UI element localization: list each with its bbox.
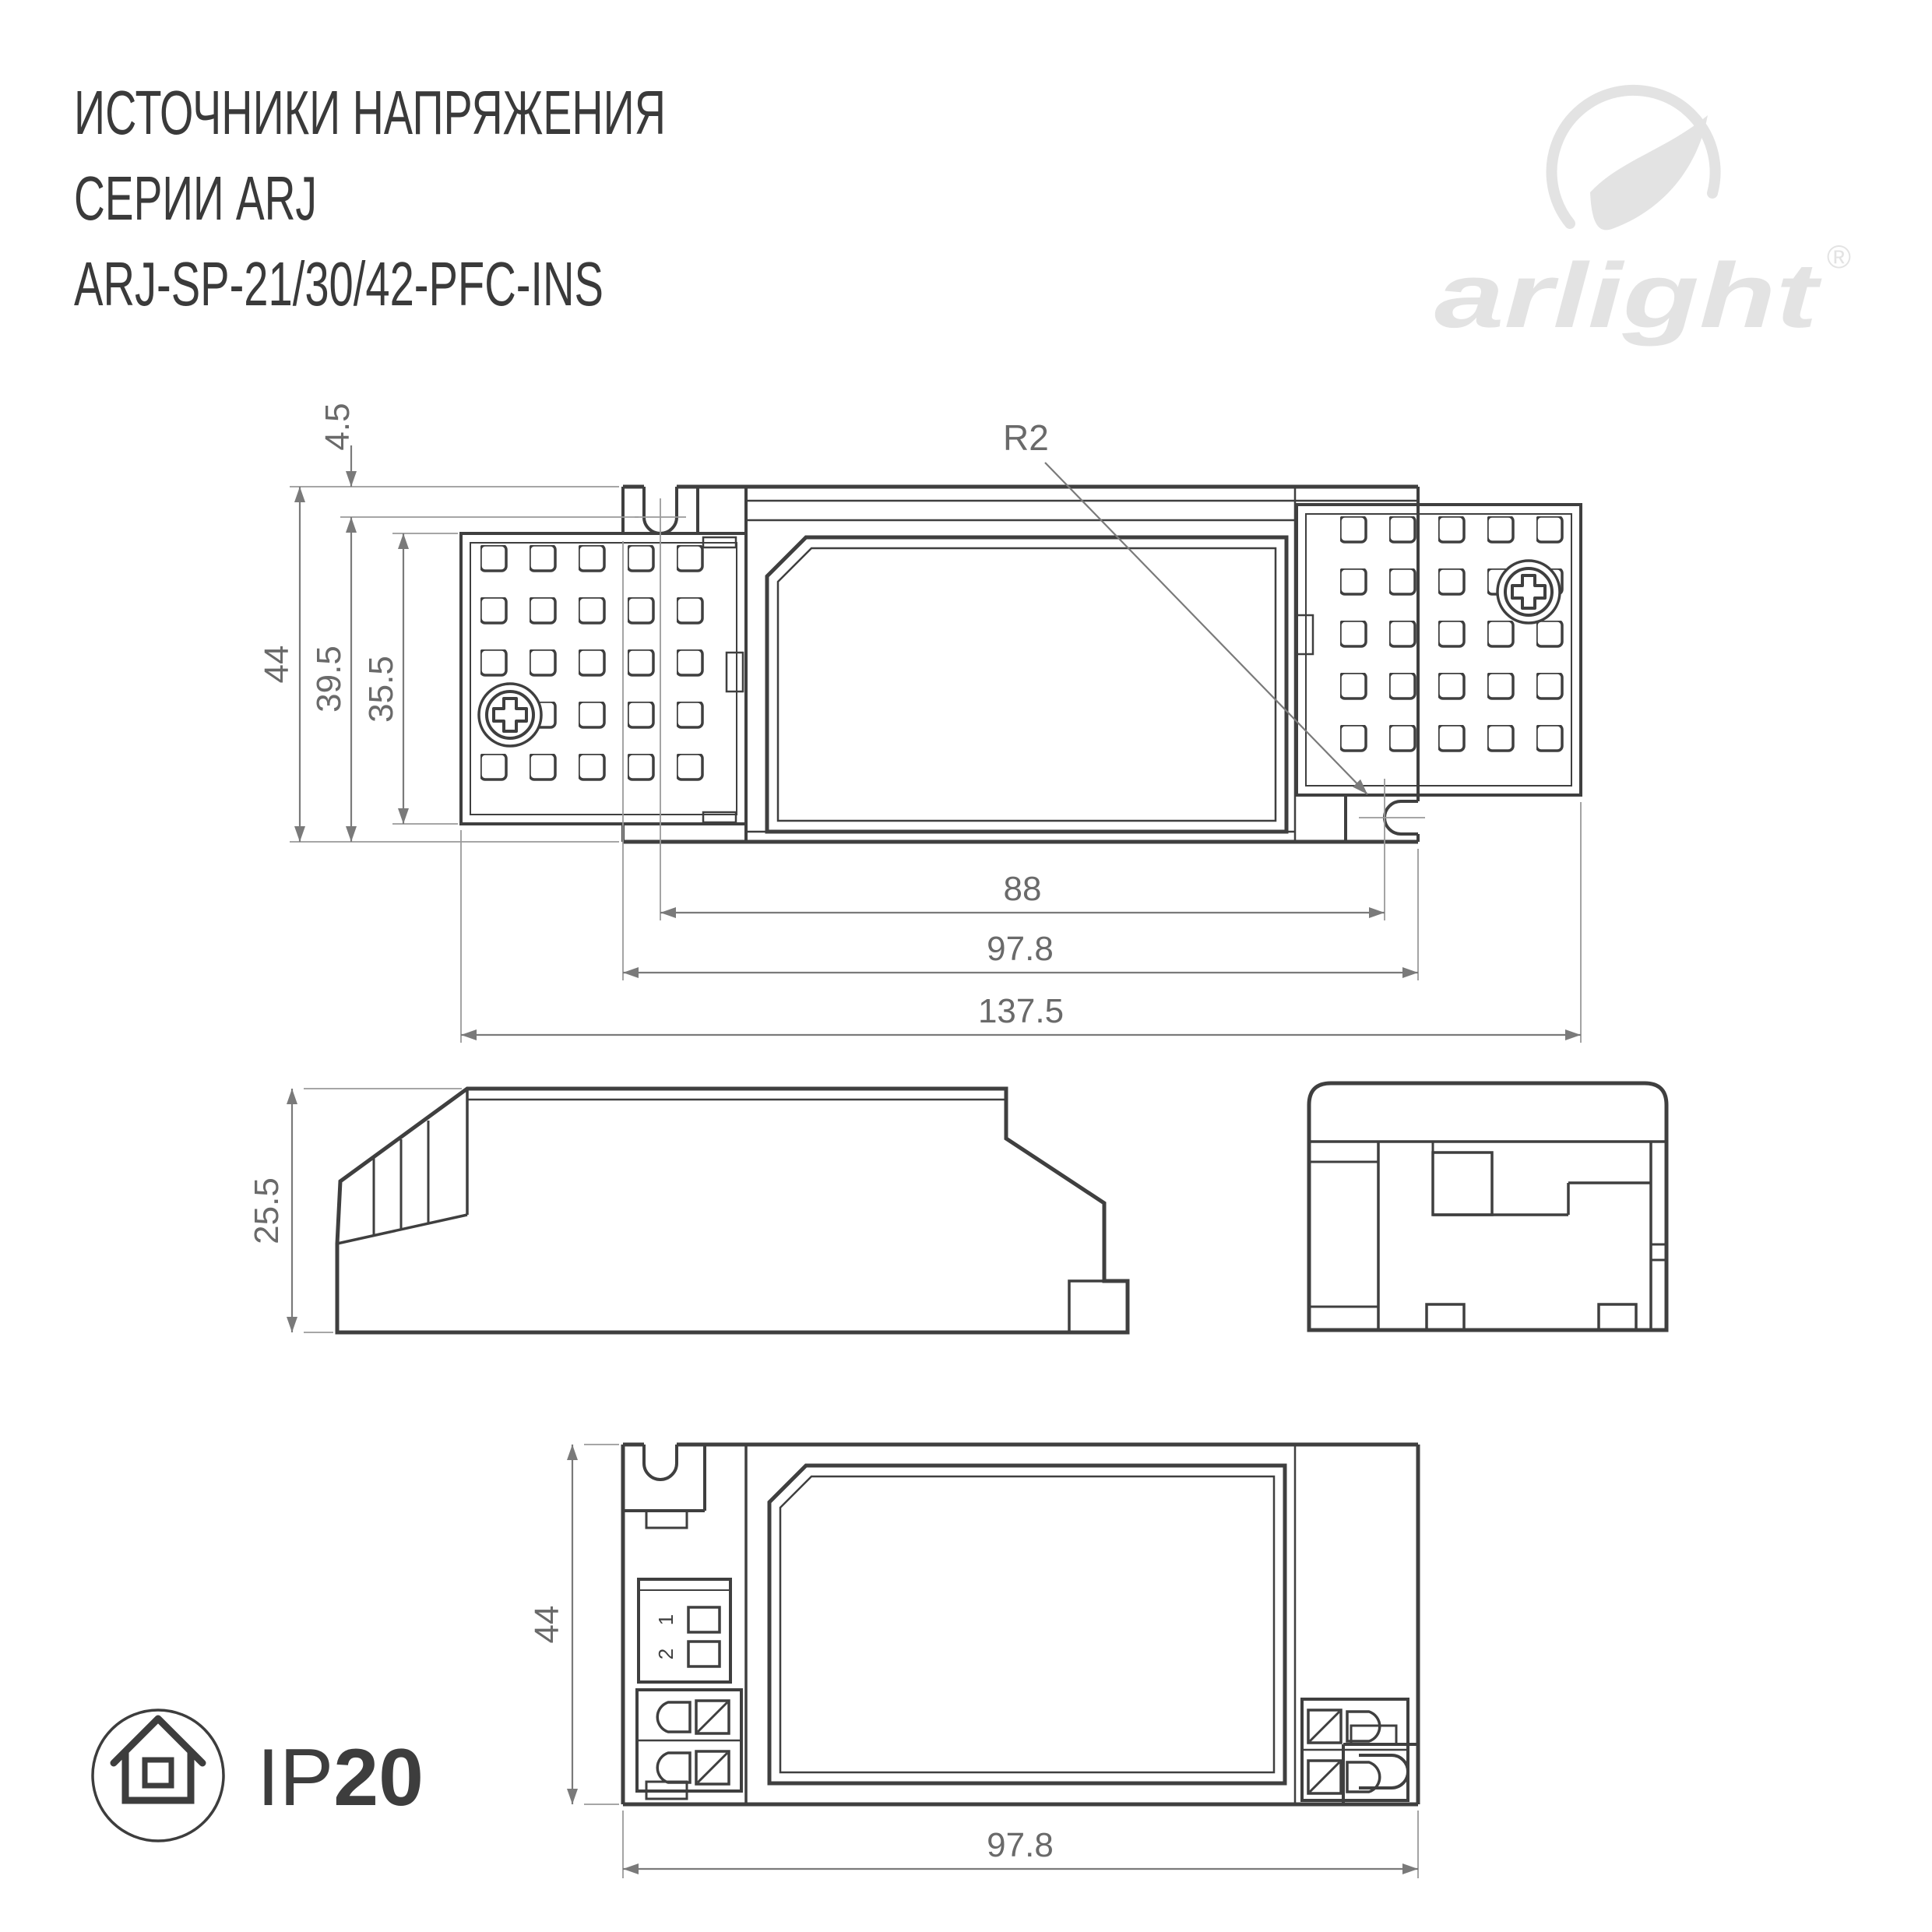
dip-switch-1[interactable] — [688, 1607, 720, 1632]
dim-plate-height: 35.5 — [362, 656, 400, 723]
ip-rating-text: IP20 — [257, 1733, 424, 1823]
mounting-slot-bottom-view-left — [644, 1445, 677, 1480]
output-terminal-block — [1302, 1699, 1408, 1800]
vent-plate-right — [1297, 505, 1581, 795]
side-view-outline — [337, 1089, 1128, 1332]
dip-label-2: 2 — [654, 1649, 677, 1659]
dip-switch-block: 1 2 — [639, 1579, 730, 1682]
dim-height-to-slot: 39.5 — [310, 646, 348, 713]
dim-offset-top: 4.5 — [318, 403, 357, 450]
registered-mark: ® — [1827, 238, 1851, 275]
dip-switch-2[interactable] — [688, 1642, 720, 1666]
wire-clamp-input-1[interactable] — [657, 1702, 690, 1732]
bottom-lid — [769, 1466, 1285, 1783]
ip-rating-prefix: IP — [257, 1733, 333, 1823]
screw-icon-left — [479, 684, 541, 746]
arlight-wordmark: arlight — [1434, 245, 1822, 347]
radius-leader-line — [1045, 463, 1367, 794]
indoor-use-icon — [93, 1710, 223, 1841]
input-terminal-block — [637, 1690, 741, 1791]
top-view: 4.5 44 39.5 35.5 88 97.8 137.5 R2 — [258, 403, 1581, 1043]
case-lid — [767, 537, 1286, 832]
slot-radius-label: R2 — [1003, 417, 1049, 458]
dim-slot-spacing: 88 — [1004, 870, 1042, 908]
end-view-outline — [1309, 1083, 1666, 1330]
side-view-dimensions: 25.5 — [248, 1089, 462, 1332]
vent-plate-left — [461, 533, 746, 824]
bottom-view: 1 2 — [528, 1445, 1418, 1878]
dip-label-1: 1 — [654, 1614, 677, 1625]
end-view — [1309, 1083, 1666, 1330]
dim-bottom-length: 97.8 — [987, 1826, 1054, 1864]
dim-side-height: 25.5 — [248, 1177, 286, 1244]
vent-grid-right — [1338, 514, 1566, 754]
screw-icon-right — [1497, 561, 1560, 623]
side-view: 25.5 — [248, 1089, 1128, 1332]
page-title-line1: ИСТОЧНИКИ НАПРЯЖЕНИЯ — [74, 78, 666, 147]
page-title-line2: СЕРИИ ARJ — [74, 164, 317, 233]
house-window-icon — [145, 1760, 171, 1786]
ip-rating: IP20 — [93, 1710, 424, 1841]
arlight-leaf-icon — [1590, 115, 1708, 230]
drawing-canvas: ИСТОЧНИКИ НАПРЯЖЕНИЯ СЕРИИ ARJ ARJ-SP-21… — [0, 0, 1932, 1932]
wire-clamp-input-2[interactable] — [657, 1753, 690, 1782]
title-block: ИСТОЧНИКИ НАПРЯЖЕНИЯ СЕРИИ ARJ ARJ-SP-21… — [74, 78, 666, 318]
dim-total-length: 137.5 — [978, 992, 1064, 1030]
dim-case-length: 97.8 — [987, 930, 1054, 968]
ip-rating-value: 20 — [333, 1733, 424, 1823]
dim-height-total: 44 — [258, 646, 296, 684]
brand-logo: arlight ® — [1434, 90, 1851, 347]
dim-bottom-height: 44 — [528, 1606, 566, 1644]
mounting-slot-bottom-view-right — [1359, 1755, 1408, 1788]
page-title-line3: ARJ-SP-21/30/42-PFC-INS — [74, 249, 604, 318]
